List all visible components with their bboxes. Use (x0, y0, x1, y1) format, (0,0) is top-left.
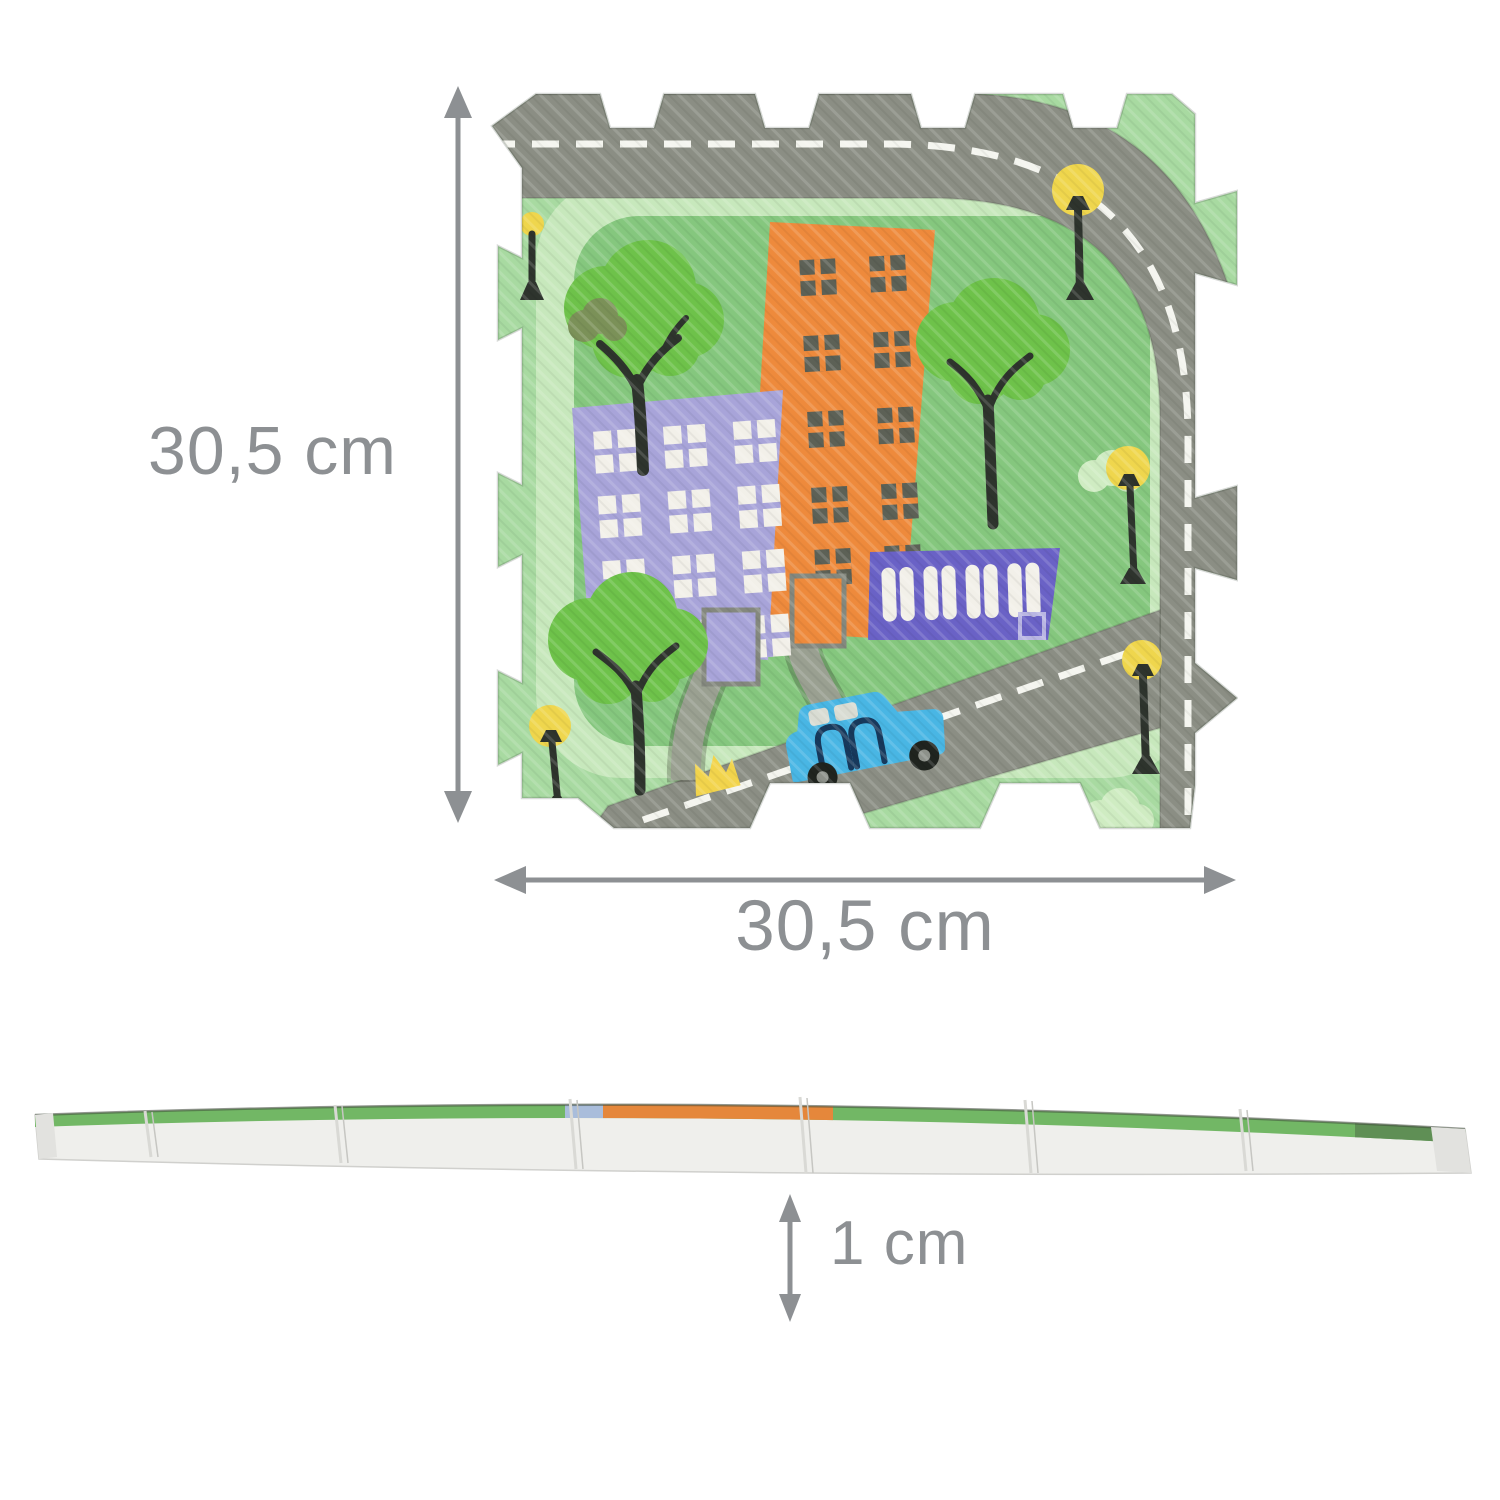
arrow-down-icon (444, 791, 472, 823)
arrow-right-icon (1204, 866, 1236, 894)
thickness-dimension-label: 1 cm (830, 1208, 1060, 1279)
play-mat-tile-top-view (488, 78, 1238, 838)
thickness-dimension-arrow (766, 1192, 814, 1324)
slab-right-end (1431, 1127, 1471, 1173)
arrow-left-icon (494, 866, 526, 894)
arrow-up-icon (779, 1194, 801, 1222)
height-dimension-label: 30,5 cm (100, 412, 445, 490)
product-dimension-diagram: 30,5 cm (0, 0, 1500, 1500)
width-dimension-label: 30,5 cm (615, 886, 1115, 967)
arrow-up-icon (444, 86, 472, 118)
play-mat-side-view (25, 1085, 1475, 1197)
foam-texture (488, 78, 1238, 838)
arrow-down-icon (779, 1294, 801, 1322)
